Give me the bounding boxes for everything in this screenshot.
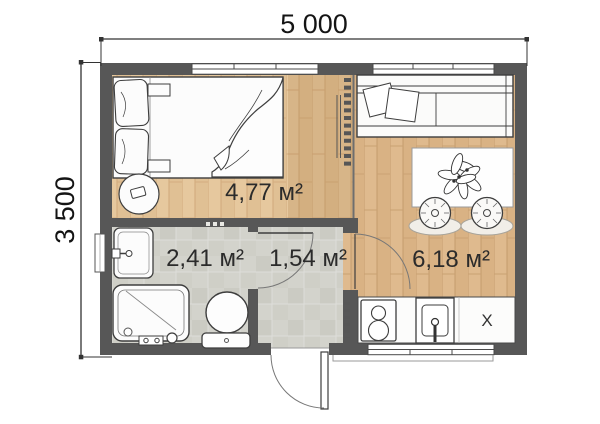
- wall-vent-marks: [206, 222, 224, 226]
- shower-tray: [113, 285, 189, 345]
- toilet: [202, 292, 250, 348]
- double-bed: [113, 77, 283, 178]
- bathroom-wall-top-stub: [248, 227, 258, 232]
- right-wall: [515, 63, 527, 355]
- living-kitchen-area-label: 6,18 м²: [412, 246, 490, 273]
- door-swing-arc: [271, 355, 324, 408]
- floor-plan: 5 000 3 500: [0, 0, 600, 424]
- bathroom-doorway-floor: [248, 232, 258, 289]
- hallway-wall-bottom-stub: [343, 290, 358, 355]
- height-dimension-label: 3 500: [50, 176, 80, 244]
- entrance-threshold: [271, 343, 329, 355]
- kitchen-counter: X: [358, 297, 515, 343]
- appliance-x-label: X: [481, 311, 492, 330]
- sofa: [357, 75, 513, 137]
- entrance-door: [271, 352, 328, 409]
- sink-icon: [416, 298, 454, 343]
- width-dimension-label: 5 000: [280, 9, 348, 39]
- dimension-width: 5 000: [99, 9, 529, 66]
- bathroom-area-label: 2,41 м²: [166, 245, 244, 272]
- bedroom-area-label: 4,77 м²: [225, 179, 303, 206]
- left-wall: [100, 63, 112, 355]
- bedside-round-table: [119, 174, 159, 214]
- bedroom-partition-wall: [100, 218, 358, 227]
- hallway-wall-top-stub: [343, 227, 358, 233]
- stove-icon: [361, 300, 396, 341]
- porch-edge: [333, 355, 493, 361]
- floor-plan-drawing: 5 000 3 500: [0, 0, 600, 424]
- hallway-area-label: 1,54 м²: [269, 245, 347, 272]
- window-kitchen: [368, 344, 494, 354]
- washbasin: [112, 228, 153, 278]
- window-living: [373, 64, 494, 74]
- window-bedroom: [192, 64, 318, 74]
- bathroom-vent-window: [95, 234, 105, 272]
